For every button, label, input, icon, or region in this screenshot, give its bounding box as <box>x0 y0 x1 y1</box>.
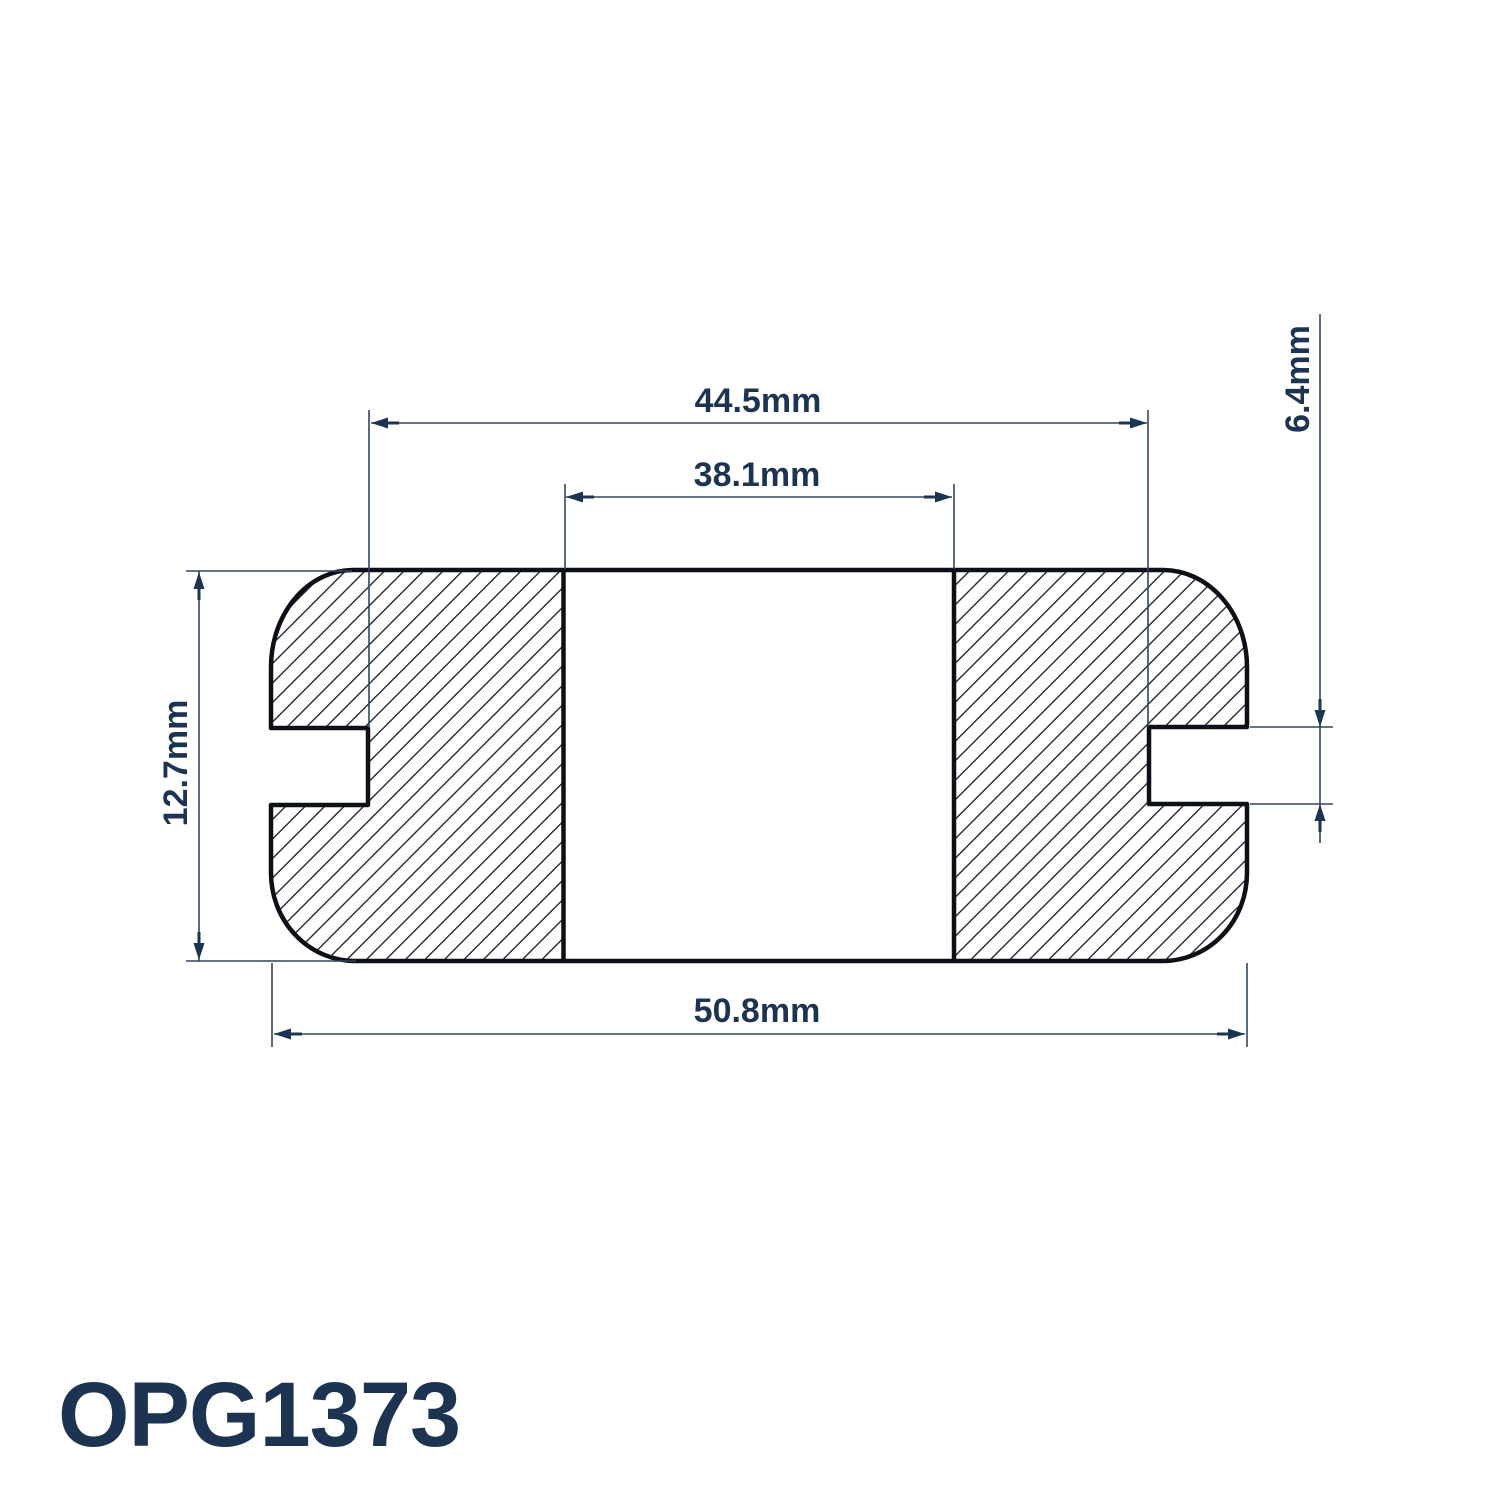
part-number: OPG1373 <box>58 1364 460 1466</box>
label-height: 12.7mm <box>157 700 195 827</box>
drawing-canvas: 44.5mm 38.1mm 12.7mm 50.8mm 6.4mm OPG137… <box>0 0 1500 1500</box>
label-groove-height: 6.4mm <box>1279 325 1317 433</box>
label-bore-width: 38.1mm <box>694 456 821 494</box>
label-flange-width: 44.5mm <box>695 382 822 420</box>
page-background <box>0 0 1500 1500</box>
label-overall-width: 50.8mm <box>694 992 821 1030</box>
technical-drawing: 44.5mm 38.1mm 12.7mm 50.8mm 6.4mm OPG137… <box>0 0 1500 1500</box>
